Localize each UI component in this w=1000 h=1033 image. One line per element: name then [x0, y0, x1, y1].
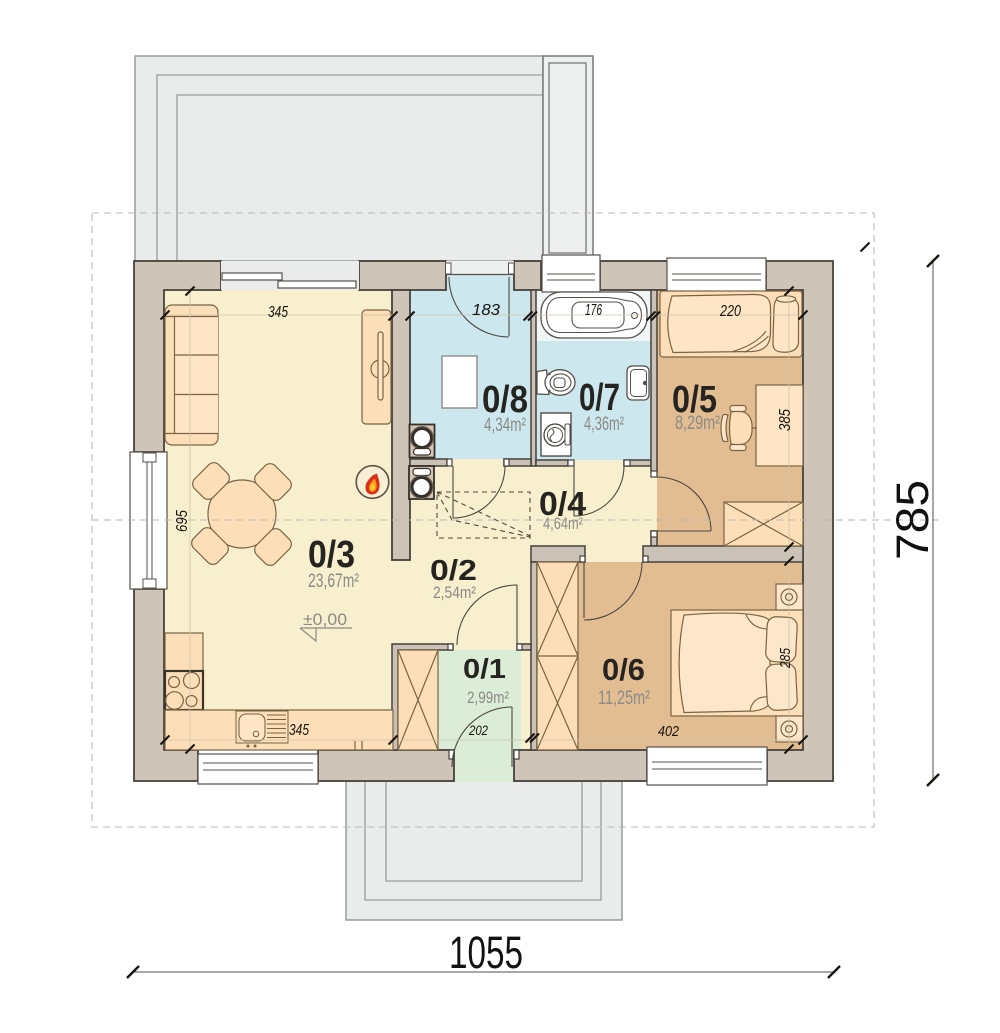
svg-text:2,99m²: 2,99m² — [467, 688, 509, 707]
svg-text:8,29m²: 8,29m² — [675, 413, 720, 434]
svg-text:695: 695 — [174, 510, 191, 532]
svg-text:4,34m²: 4,34m² — [484, 415, 526, 436]
svg-text:±0,00: ±0,00 — [303, 610, 347, 629]
svg-text:0/1: 0/1 — [463, 653, 506, 684]
svg-text:202: 202 — [468, 722, 488, 738]
svg-text:385: 385 — [777, 409, 794, 431]
svg-text:402: 402 — [658, 723, 680, 740]
svg-text:345: 345 — [289, 722, 309, 739]
svg-text:176: 176 — [585, 302, 602, 319]
svg-text:2,54m²: 2,54m² — [433, 583, 476, 602]
svg-text:23,67m²: 23,67m² — [308, 571, 359, 592]
svg-text:183: 183 — [472, 302, 500, 319]
svg-text:0/6: 0/6 — [602, 652, 645, 687]
svg-text:785: 785 — [887, 480, 938, 560]
svg-text:11,25m²: 11,25m² — [598, 688, 650, 709]
svg-text:4,64m²: 4,64m² — [543, 514, 583, 533]
svg-text:4,36m²: 4,36m² — [584, 414, 624, 435]
svg-text:285: 285 — [777, 647, 794, 668]
svg-text:0/7: 0/7 — [579, 377, 620, 419]
svg-text:220: 220 — [719, 303, 741, 320]
svg-text:345: 345 — [268, 304, 288, 321]
svg-text:0/3: 0/3 — [308, 534, 355, 576]
svg-text:1055: 1055 — [449, 927, 523, 978]
